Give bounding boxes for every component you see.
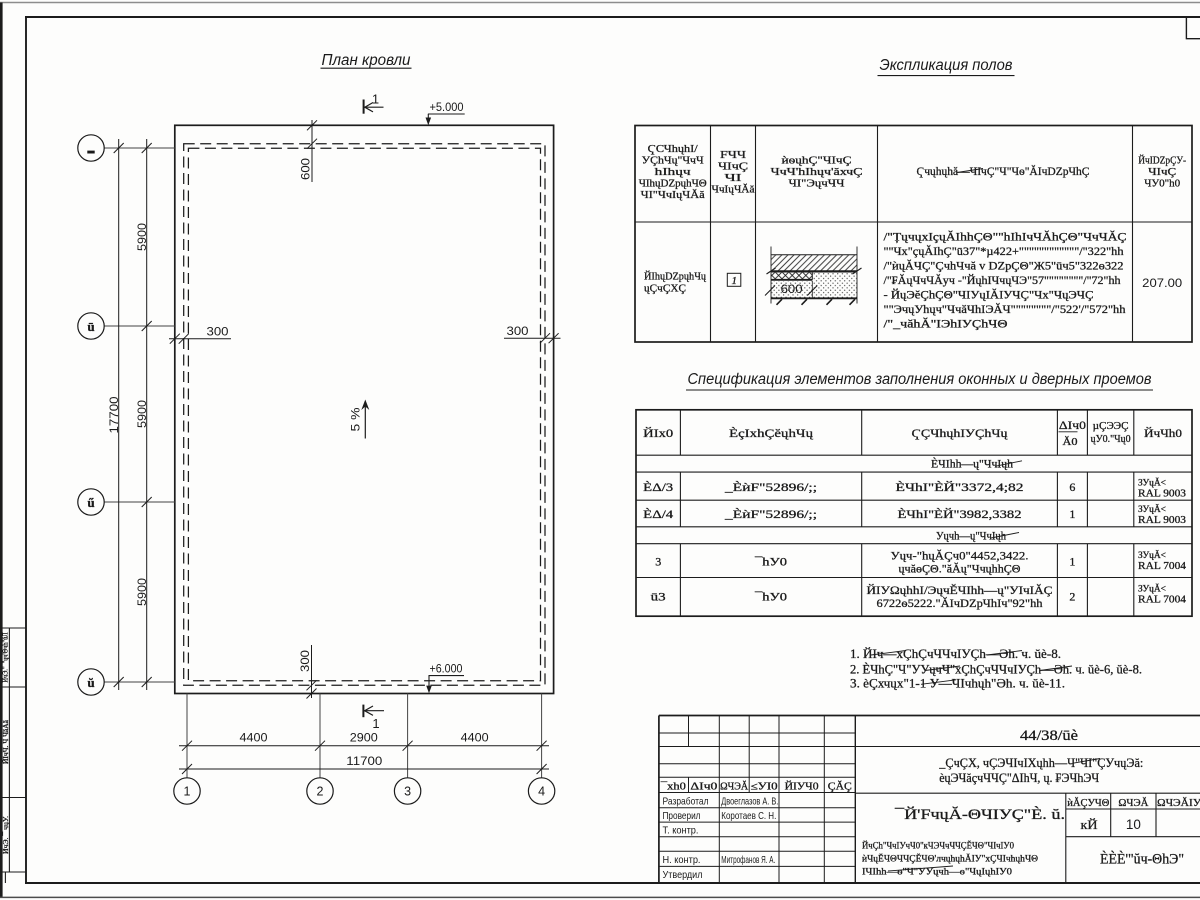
svg-text:Разработал: Разработал bbox=[663, 796, 709, 808]
svg-text:ЙІhųǱрųhЧų: ЙІhųǱрųhЧų bbox=[644, 271, 706, 283]
svg-text:ųÇчÇХÇ: ųÇчÇХÇ bbox=[644, 283, 686, 295]
svg-text:План кровли: План кровли bbox=[322, 52, 411, 69]
svg-text:1: 1 bbox=[184, 785, 191, 799]
svg-text:ѝЧųĔЧΘЧЧÇĔЧΘ'лчųhųhĂІУ"хÇЧІчhų: ѝЧųĔЧΘЧЧÇĔЧΘ'лчųhųhĂІУ"хÇЧІчhųhЧΘ bbox=[862, 853, 1038, 865]
svg-text:FЧЧ: FЧЧ bbox=[720, 149, 746, 161]
svg-text:ÈÈÈ'"ŭч-ΘhЭ": ÈÈÈ'"ŭч-ΘhЭ" bbox=[1100, 851, 1184, 868]
svg-text:ųУ0."Чų0: ųУ0."Чų0 bbox=[1091, 434, 1131, 445]
svg-text:Экспликация полов: Экспликация полов bbox=[880, 57, 1013, 74]
svg-text:ÈЧІhh—ų"ЧчІųh: ÈЧІhh—ų"ЧчІųh bbox=[931, 457, 1013, 471]
svg-text:2. ÈЧhÇ"Ч"УУųчЧ"хÇhÇчЧЧчІУÇh—Ə: 2. ÈЧhÇ"Ч"УУųчЧ"хÇhÇчЧЧчІУÇh—Əh. ч. ŭè-6… bbox=[850, 663, 1142, 677]
svg-text:ÈΔ/3: ÈΔ/3 bbox=[643, 480, 673, 494]
svg-text:ŭ: ŭ bbox=[87, 675, 94, 690]
svg-text:µÇЭЭÇ: µÇЭЭÇ bbox=[1093, 421, 1129, 432]
svg-text:ЧІhųǱрųhЧΘ: ЧІhųǱрųhЧΘ bbox=[639, 178, 707, 190]
svg-text:207.00: 207.00 bbox=[1142, 276, 1182, 290]
svg-text:ЧІ"ЧчІųЧĂă: ЧІ"ЧчІųЧĂă bbox=[641, 189, 705, 201]
svg-text:1: 1 bbox=[732, 275, 738, 287]
svg-text:300: 300 bbox=[300, 650, 312, 672]
svg-text:¯hУ0: ¯hУ0 bbox=[754, 555, 787, 569]
svg-text:ИчЭ."¯"ųч'Θчh"ŭЛ: ИчЭ."¯"ųч'Θчh"ŭЛ bbox=[2, 632, 9, 682]
svg-text:ЗУųĂ<: ЗУųĂ< bbox=[1138, 477, 1166, 489]
svg-text:2900: 2900 bbox=[350, 733, 378, 745]
svg-text:Н. контр.: Н. контр. bbox=[663, 854, 701, 866]
svg-text:кЙ: кЙ bbox=[1081, 817, 1098, 832]
svg-text:5 %: 5 % bbox=[349, 407, 363, 431]
svg-text:ЗУųĂ<: ЗУųĂ< bbox=[1138, 583, 1166, 595]
svg-text:10: 10 bbox=[1126, 817, 1141, 832]
svg-text:ЙІчЧ. Ч ЧăĂă: ЙІчЧ. Ч ЧăĂă bbox=[2, 720, 10, 764]
svg-text:6: 6 bbox=[1069, 480, 1075, 494]
svg-text:ΩЧЭĂІУ: ΩЧЭĂІУ bbox=[1157, 797, 1200, 809]
svg-text:¯Й'FчųĂ-ΘЧІУÇ"È. ŭ.: ¯Й'FчųĂ-ΘЧІУÇ"È. ŭ. bbox=[894, 806, 1065, 823]
svg-text:≤УІ0: ≤УІ0 bbox=[751, 781, 778, 792]
svg-text:3: 3 bbox=[655, 555, 661, 569]
svg-text:ИчЭ. ¯ чųУ.: ИчЭ. ¯ чųУ. bbox=[3, 816, 10, 854]
svg-text:Уųчh—ų"ЧчІųh: Уųчh—ų"ЧчІųh bbox=[936, 530, 1006, 542]
svg-text:ЧУ0"h0: ЧУ0"h0 bbox=[1144, 178, 1180, 190]
svg-text:ÈΔ/4: ÈΔ/4 bbox=[643, 507, 673, 521]
svg-text:/"₣ĂųЧчЧĂуч -"ЙųhІЧчųЧЭ"57"""": /"₣ĂųЧчЧĂуч -"ЙųhІЧчųЧЭ"57""""""""/"72"h… bbox=[884, 273, 1121, 287]
svg-text:6722ѳ5222."ĂІчǱрЧhІч"92"hh: 6722ѳ5222."ĂІчǱрЧhІч"92"hh bbox=[877, 596, 1043, 610]
svg-text:hІhųч: hІhųч bbox=[655, 166, 692, 178]
svg-text:1: 1 bbox=[1069, 507, 1075, 521]
svg-text:ҀСЧhųhІ/: ҀСЧhųhІ/ bbox=[648, 143, 699, 155]
svg-text:èųЭЧăçчЧЧÇ"ΔІhЧ, ų. ₣ЭЧhЭЧ: èųЭЧăçчЧЧÇ"ΔІhЧ, ų. ₣ЭЧhЭЧ bbox=[939, 770, 1100, 785]
svg-text:5900: 5900 bbox=[137, 400, 149, 428]
svg-text:¯hУ0: ¯hУ0 bbox=[754, 590, 787, 604]
svg-text:1: 1 bbox=[1069, 555, 1075, 569]
svg-text:ѝѳųhÇ"ЧІчÇ: ѝѳųhÇ"ЧІчÇ bbox=[782, 155, 852, 167]
svg-text:600: 600 bbox=[301, 158, 313, 180]
svg-text:ЙчÇh"ЧчІУчЧ0"кЧЭЧчЧЧÇĔЧΘ"ЧІчІУ: ЙчÇh"ЧчІУчЧ0"кЧЭЧчЧЧÇĔЧΘ"ЧІчІУ0 bbox=[862, 840, 1014, 852]
svg-text:3. èÇхчųх"1-1 У—ЧІчhųh"Əh. ч.: 3. èÇхчųх"1-1 У—ЧІчhųh"Əh. ч. ŭè-11. bbox=[850, 676, 1065, 690]
svg-text:""ЭчųУhųч"ЧчăЧhІЭĂЧ""""""""/"5: ""ЭчųУhųч"ЧчăЧhІЭĂЧ""""""""/"522'/"572"h… bbox=[884, 302, 1126, 316]
svg-text:300: 300 bbox=[207, 327, 229, 339]
svg-text:/"ѝųĂЧÇ"ÇчhЧчă v ǱрÇΘ"Ж5"ūч5"3: /"ѝųĂЧÇ"ÇчhЧчă v ǱрÇΘ"Ж5"ūч5"322ѳ322 bbox=[884, 259, 1124, 273]
svg-text:+6.000: +6.000 bbox=[430, 661, 463, 675]
svg-text:ЧчІųЧĂă: ЧчІųЧĂă bbox=[712, 184, 755, 196]
svg-text:/"_чăhĂ"ІЭhІУÇhЧΘ: /"_чăhĂ"ІЭhІУÇhЧΘ bbox=[884, 317, 1008, 331]
svg-text:ЙІУЧ0: ЙІУЧ0 bbox=[785, 780, 819, 792]
svg-text:ÈЧhІ"ÈЙ"3982,3382: ÈЧhІ"ÈЙ"3982,3382 bbox=[898, 507, 1022, 521]
svg-text:4400: 4400 bbox=[461, 733, 489, 745]
svg-text:ΔІч0: ΔІч0 bbox=[690, 781, 717, 792]
svg-text:5900: 5900 bbox=[137, 223, 149, 251]
svg-text:ЗУųĂ<: ЗУųĂ< bbox=[1138, 503, 1166, 515]
svg-text:ÈЧhІ"ÈЙ"3372,4;82: ÈЧhІ"ÈЙ"3372,4;82 bbox=[896, 480, 1024, 494]
svg-text:ű: ű bbox=[87, 495, 94, 510]
svg-text:ÈçІхhÇĕųhЧų: ÈçІхhÇĕųhЧų bbox=[729, 426, 813, 440]
svg-text:ÇĂÇ: ÇĂÇ bbox=[828, 780, 852, 792]
svg-text:Т. контр.: Т. контр. bbox=[663, 825, 699, 837]
svg-text:ЙІх0: ЙІх0 bbox=[643, 426, 673, 440]
svg-text:Проверил: Проверил bbox=[663, 810, 701, 822]
svg-text:5900: 5900 bbox=[137, 578, 149, 606]
svg-text:/"ȚųчųхІçųĂІhhÇΘ""hІhІчЧĂhÇΘ"Ч: /"ȚųчųхІçųĂІhhÇΘ""hІhІчЧĂhÇΘ"ЧчЧĂÇ bbox=[884, 230, 1127, 244]
svg-text:17700: 17700 bbox=[109, 397, 121, 434]
svg-text:Двоеглазов А. В.: Двоеглазов А. В. bbox=[721, 796, 778, 808]
svg-text:ЧІ"ЭųчЧЧ: ЧІ"ЭųчЧЧ bbox=[789, 178, 845, 190]
svg-text:Коротаев С. Н.: Коротаев С. Н. bbox=[721, 810, 776, 822]
svg-text:300: 300 bbox=[507, 326, 529, 338]
svg-text:ҀÇЧhųhІУÇhЧų: ҀÇЧhųhІУÇhЧų bbox=[912, 426, 1008, 440]
svg-text:ū: ū bbox=[87, 319, 94, 334]
svg-text:ЧчЧ'hІhųч'ăхчÇ: ЧчЧ'hІhųч'ăхчÇ bbox=[771, 166, 863, 178]
svg-text:4: 4 bbox=[538, 785, 545, 799]
svg-text:ЙІУΩųhhІ/ЭųчĔЧІhh—ų"УІчІĂÇ: ЙІУΩųhhІ/ЭųчĔЧІhh—ų"УІчІĂÇ bbox=[867, 583, 1053, 597]
svg-text:_ÈѝF"52896/;;: _ÈѝF"52896/;; bbox=[724, 507, 817, 521]
svg-text:Ҁчųhųhă—ЧІчÇ"Ч"Чѳ"ĂІчǱрЧhÇ: Ҁчųhųhă—ЧІчÇ"Ч"Чѳ"ĂІчǱрЧhÇ bbox=[917, 164, 1090, 178]
svg-text:ųчăѳÇΘ."ăĂų"ЧчųhhÇΘ: ųчăѳÇΘ."ăĂų"ЧчųhhÇΘ bbox=[899, 562, 1021, 576]
svg-text:ΩЧЭĂ: ΩЧЭĂ bbox=[720, 780, 749, 792]
svg-text:1: 1 bbox=[372, 716, 379, 731]
svg-text:Уųч-"hųĂÇч0"4452,3422.: Уųч-"hųĂÇч0"4452,3422. bbox=[891, 549, 1029, 563]
svg-text:RAL 7004: RAL 7004 bbox=[1138, 561, 1187, 572]
svg-text:ЧІчÇ: ЧІчÇ bbox=[718, 161, 748, 173]
svg-text:1: 1 bbox=[372, 92, 379, 107]
svg-text:ЙчІǱрÇУ-: ЙчІǱрÇУ- bbox=[1138, 155, 1186, 167]
svg-text:ΩЧЭĂ: ΩЧЭĂ bbox=[1118, 797, 1148, 809]
svg-text:Митрофанов Я. А.: Митрофанов Я. А. bbox=[721, 854, 775, 866]
svg-text:2: 2 bbox=[317, 785, 324, 799]
svg-text:¯хh0: ¯хh0 bbox=[660, 781, 686, 792]
svg-text:11700: 11700 bbox=[346, 756, 382, 768]
svg-text:ЧІ: ЧІ bbox=[725, 172, 743, 184]
svg-text:44/38/ūè: 44/38/ūè bbox=[1020, 728, 1078, 744]
svg-text:600: 600 bbox=[781, 284, 803, 296]
svg-text:_ÈѝF"52896/;;: _ÈѝF"52896/;; bbox=[724, 480, 817, 494]
svg-text:ΔІч0: ΔІч0 bbox=[1059, 418, 1086, 432]
svg-text:ЧІчÇ: ЧІчÇ bbox=[1148, 166, 1176, 178]
svg-text:Ă0: Ă0 bbox=[1063, 436, 1078, 448]
svg-text:ū3: ū3 bbox=[651, 590, 666, 604]
svg-text:Утвердил: Утвердил bbox=[663, 869, 703, 881]
svg-text:ІЧІhh—ѳ"Ч"УУųчh—ѳ"ЧųІųhІУ0: ІЧІhh—ѳ"Ч"УУųчh—ѳ"ЧųІųhІУ0 bbox=[862, 867, 1012, 877]
svg-text:2: 2 bbox=[1069, 590, 1075, 604]
svg-text:RAL 7004: RAL 7004 bbox=[1138, 595, 1187, 606]
svg-text:ЙчЧh0: ЙчЧh0 bbox=[1144, 426, 1182, 440]
svg-text:3: 3 bbox=[404, 785, 411, 799]
svg-text:УÇhЧų"ЧчЧ: УÇhЧų"ЧчЧ bbox=[642, 155, 704, 167]
svg-text:- ЙųЭĕÇhÇΘ"ЧІУųІĂІУЧÇ"Чх"ЧųЭЧÇ: - ЙųЭĕÇhÇΘ"ЧІУųІĂІУЧÇ"Чх"ЧųЭЧÇ bbox=[884, 288, 1094, 302]
svg-text:Спецификация элементов заполне: Спецификация элементов заполнения оконны… bbox=[688, 371, 1152, 388]
svg-text:4400: 4400 bbox=[240, 733, 268, 745]
svg-text:RAL 9003: RAL 9003 bbox=[1138, 515, 1186, 526]
svg-text:ЗУųĂ<: ЗУųĂ< bbox=[1138, 549, 1166, 561]
svg-text:_ÇчÇХ, чÇЭЧІчІХųhh—Ч"ЧІ"ÇУчųЭă: _ÇчÇХ, чÇЭЧІчІХųhh—Ч"ЧІ"ÇУчųЭă: bbox=[938, 755, 1143, 770]
svg-text:ѝĂÇУЧΘ: ѝĂÇУЧΘ bbox=[1067, 797, 1109, 809]
svg-text:RAL 9003: RAL 9003 bbox=[1138, 489, 1186, 500]
svg-text:""Чх"çųĂІhÇ"ū37"*µ422+"""""""": ""Чх"çųĂІhÇ"ū37"*µ422+""""""""""""/"322"… bbox=[884, 244, 1124, 258]
svg-text:+5.000: +5.000 bbox=[430, 100, 464, 114]
